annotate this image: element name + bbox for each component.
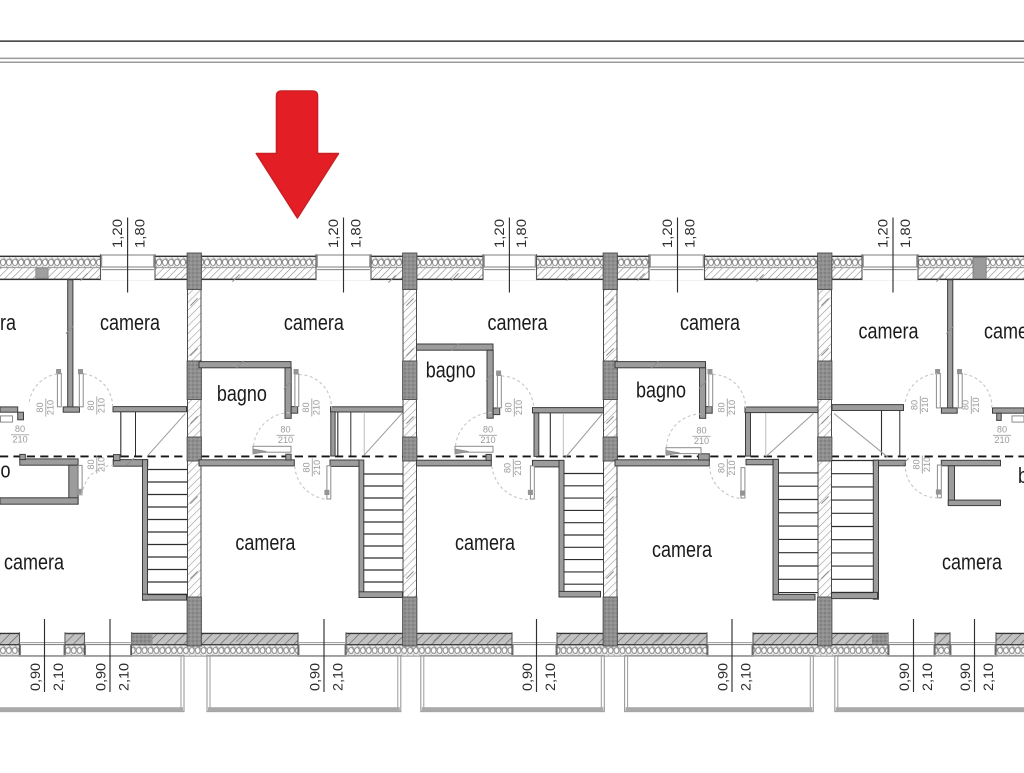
svg-text:210: 210: [994, 435, 1009, 445]
svg-text:bagno: bagno: [426, 358, 476, 383]
svg-text:80: 80: [483, 425, 493, 435]
svg-text:210: 210: [480, 435, 495, 445]
svg-text:camera: camera: [859, 318, 920, 343]
svg-text:camera: camera: [680, 310, 741, 335]
svg-text:80: 80: [910, 400, 920, 410]
svg-text:210: 210: [971, 397, 981, 412]
svg-text:camera: camera: [4, 550, 65, 575]
svg-text:0,90: 0,90: [897, 663, 913, 691]
svg-text:0,90: 0,90: [28, 663, 44, 691]
svg-text:bagno: bagno: [636, 378, 686, 403]
svg-text:2,10: 2,10: [331, 663, 347, 691]
svg-text:80: 80: [35, 402, 45, 412]
svg-text:210: 210: [97, 457, 107, 472]
svg-text:80: 80: [504, 402, 514, 412]
svg-text:210: 210: [920, 397, 930, 412]
svg-text:80: 80: [717, 402, 727, 412]
svg-text:80: 80: [717, 463, 727, 473]
svg-text:210: 210: [46, 400, 56, 415]
svg-text:1,20: 1,20: [492, 219, 508, 248]
svg-text:210: 210: [97, 398, 107, 413]
svg-text:210: 210: [727, 460, 737, 475]
svg-text:80: 80: [302, 462, 312, 472]
svg-text:1,20: 1,20: [660, 219, 676, 248]
svg-text:0,90: 0,90: [94, 663, 110, 691]
svg-text:bagno: bagno: [0, 458, 11, 483]
svg-text:2,10: 2,10: [981, 663, 997, 691]
svg-text:210: 210: [922, 457, 932, 472]
svg-text:1,80: 1,80: [682, 219, 698, 248]
svg-text:camera: camera: [100, 310, 161, 335]
svg-text:camera: camera: [984, 318, 1024, 343]
svg-text:camera: camera: [235, 530, 296, 555]
svg-text:1,20: 1,20: [110, 219, 126, 248]
svg-text:camera: camera: [455, 530, 516, 555]
svg-text:2,10: 2,10: [117, 663, 133, 691]
svg-text:camera: camera: [488, 310, 549, 335]
svg-text:80: 80: [997, 425, 1007, 435]
svg-text:80: 80: [912, 459, 922, 469]
svg-text:210: 210: [694, 436, 709, 446]
svg-text:80: 80: [86, 459, 96, 469]
svg-text:210: 210: [278, 435, 293, 445]
svg-text:80: 80: [280, 425, 290, 435]
svg-text:0,90: 0,90: [716, 663, 732, 691]
svg-text:0,90: 0,90: [958, 663, 974, 691]
svg-text:210: 210: [727, 400, 737, 415]
svg-text:80: 80: [696, 426, 706, 436]
svg-text:camera: camera: [0, 310, 17, 335]
svg-text:2,10: 2,10: [920, 663, 936, 691]
svg-text:80: 80: [86, 400, 96, 410]
svg-text:0,90: 0,90: [308, 663, 324, 691]
svg-text:80: 80: [961, 400, 971, 410]
svg-text:2,10: 2,10: [739, 663, 755, 691]
svg-text:210: 210: [513, 460, 523, 475]
svg-text:210: 210: [514, 400, 524, 415]
svg-text:1,80: 1,80: [348, 219, 364, 248]
svg-text:2,10: 2,10: [51, 663, 67, 691]
svg-text:bagno: bagno: [1018, 463, 1024, 488]
svg-text:1,20: 1,20: [326, 219, 342, 248]
svg-text:210: 210: [12, 435, 27, 445]
svg-text:1,80: 1,80: [132, 219, 148, 248]
svg-text:80: 80: [503, 463, 513, 473]
svg-text:80: 80: [15, 424, 25, 434]
svg-text:bagno: bagno: [217, 381, 267, 406]
svg-text:camera: camera: [284, 310, 345, 335]
svg-text:2,10: 2,10: [543, 663, 559, 691]
svg-text:0,90: 0,90: [520, 663, 536, 691]
svg-text:80: 80: [301, 402, 311, 412]
svg-text:210: 210: [312, 400, 322, 415]
svg-text:210: 210: [312, 460, 322, 475]
svg-text:camera: camera: [942, 550, 1003, 575]
svg-text:1,80: 1,80: [898, 219, 914, 248]
svg-text:1,20: 1,20: [876, 219, 892, 248]
svg-text:1,80: 1,80: [514, 219, 530, 248]
svg-text:camera: camera: [652, 537, 713, 562]
